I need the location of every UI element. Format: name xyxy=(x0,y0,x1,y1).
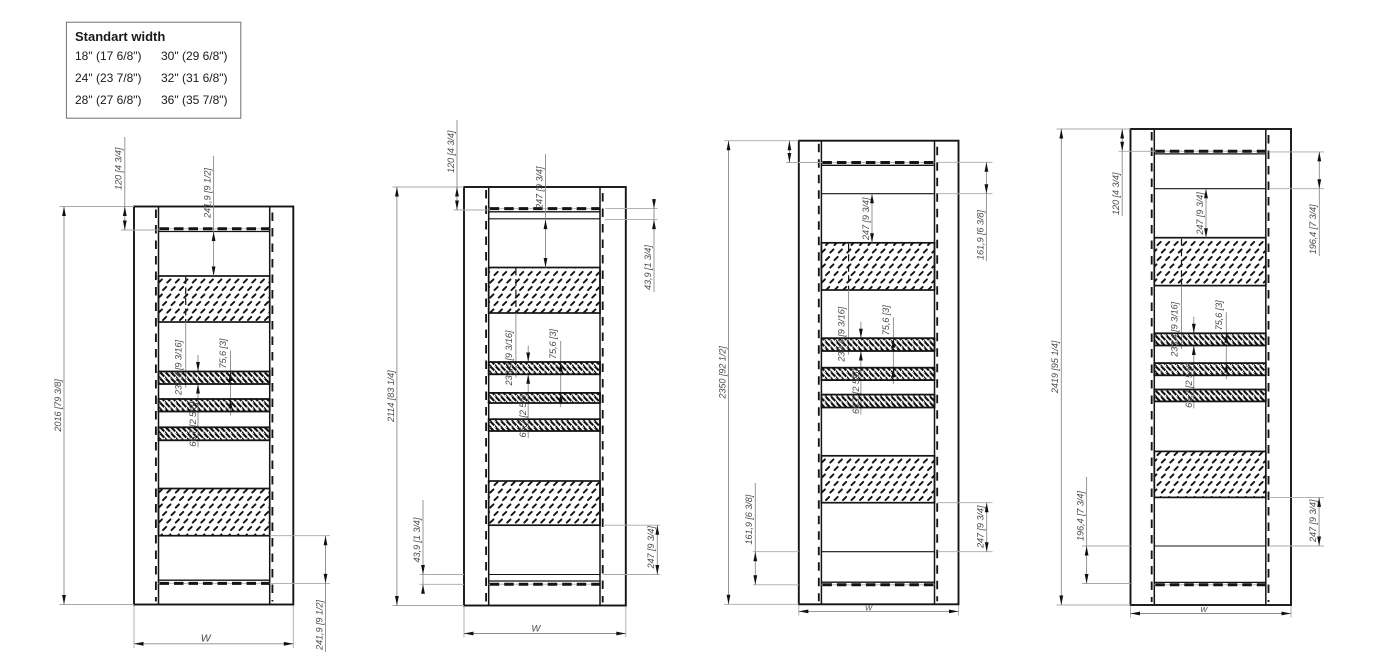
svg-text:247 [9 3/4]: 247 [9 3/4] xyxy=(646,526,656,570)
svg-text:43,9 [1 3/4]: 43,9 [1 3/4] xyxy=(412,517,422,562)
svg-text:43,9 [1 3/4]: 43,9 [1 3/4] xyxy=(643,245,653,290)
svg-text:18" (17 6/8"): 18" (17 6/8") xyxy=(75,49,142,63)
svg-text:161,9 [6 3/8]: 161,9 [6 3/8] xyxy=(744,494,754,544)
svg-text:2419 [95 1/4]: 2419 [95 1/4] xyxy=(1050,340,1060,394)
svg-text:2350 [92 1/2]: 2350 [92 1/2] xyxy=(717,346,727,400)
svg-text:66,7 [2 5/8]: 66,7 [2 5/8] xyxy=(188,401,198,446)
svg-text:66,7 [2 5/8]: 66,7 [2 5/8] xyxy=(518,392,528,437)
svg-text:120 [4 3/4]: 120 [4 3/4] xyxy=(114,147,124,190)
svg-text:233,4 [9 3/16]: 233,4 [9 3/16] xyxy=(837,306,847,362)
svg-text:247 [9 3/4]: 247 [9 3/4] xyxy=(976,505,986,549)
svg-text:66,7 [2 5/8]: 66,7 [2 5/8] xyxy=(851,369,861,414)
svg-text:161,9 [6 3/8]: 161,9 [6 3/8] xyxy=(975,210,985,260)
svg-text:28" (27 6/8"): 28" (27 6/8") xyxy=(75,93,142,107)
svg-text:75,6 [3]: 75,6 [3] xyxy=(548,329,558,359)
svg-text:120 [4 3/4]: 120 [4 3/4] xyxy=(446,130,456,173)
svg-text:W: W xyxy=(201,633,212,645)
svg-text:247 [9 3/4]: 247 [9 3/4] xyxy=(861,197,871,241)
svg-text:75,6 [3]: 75,6 [3] xyxy=(1214,300,1224,330)
svg-text:66,7 [2 5/8]: 66,7 [2 5/8] xyxy=(1184,363,1194,408)
svg-text:36" (35 7/8"): 36" (35 7/8") xyxy=(161,93,228,107)
svg-text:32" (31 6/8"): 32" (31 6/8") xyxy=(161,71,228,85)
svg-text:196,4 [7 3/4]: 196,4 [7 3/4] xyxy=(1076,491,1086,541)
svg-text:24" (23 7/8"): 24" (23 7/8") xyxy=(75,71,142,85)
svg-text:247 [9 3/4]: 247 [9 3/4] xyxy=(1195,192,1205,236)
svg-text:241,9 [9 1/2]: 241,9 [9 1/2] xyxy=(203,168,213,219)
svg-text:75,6 [3]: 75,6 [3] xyxy=(881,305,891,335)
svg-text:233,4 [9 3/16]: 233,4 [9 3/16] xyxy=(504,330,514,386)
svg-text:30" (29 6/8"): 30" (29 6/8") xyxy=(161,49,228,63)
svg-text:233,4 [9 3/16]: 233,4 [9 3/16] xyxy=(174,340,184,396)
svg-text:196,4 [7 3/4]: 196,4 [7 3/4] xyxy=(1308,204,1318,254)
svg-text:Standart width: Standart width xyxy=(75,29,165,44)
svg-text:W: W xyxy=(865,603,873,612)
svg-text:2016 [79 3/8]: 2016 [79 3/8] xyxy=(53,379,63,433)
svg-text:75,6 [3]: 75,6 [3] xyxy=(218,338,228,368)
svg-text:120 [4 3/4]: 120 [4 3/4] xyxy=(1111,172,1121,215)
svg-text:W: W xyxy=(531,623,541,634)
svg-text:241,9 [9 1/2]: 241,9 [9 1/2] xyxy=(314,600,324,651)
svg-text:2114 [83 1/4]: 2114 [83 1/4] xyxy=(386,370,396,423)
svg-text:233,4 [9 3/16]: 233,4 [9 3/16] xyxy=(1170,301,1180,357)
svg-text:W: W xyxy=(1200,605,1208,614)
svg-text:247 [9 3/4]: 247 [9 3/4] xyxy=(534,166,544,210)
svg-text:247 [9 3/4]: 247 [9 3/4] xyxy=(1308,499,1318,543)
